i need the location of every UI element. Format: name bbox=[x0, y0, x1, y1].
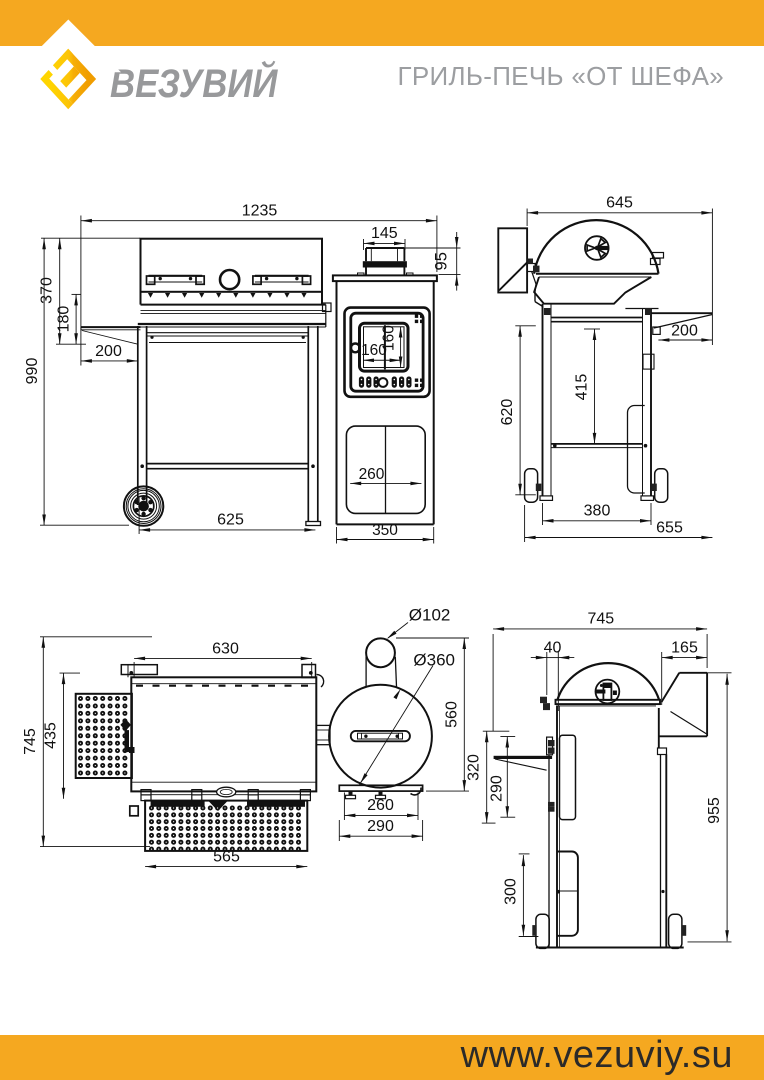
svg-text:645: 645 bbox=[606, 195, 633, 212]
svg-text:200: 200 bbox=[671, 322, 698, 339]
svg-text:625: 625 bbox=[217, 512, 244, 529]
svg-text:40: 40 bbox=[544, 639, 562, 656]
svg-text:990: 990 bbox=[24, 358, 41, 385]
svg-text:435: 435 bbox=[43, 722, 60, 749]
svg-text:180: 180 bbox=[55, 306, 72, 333]
svg-text:290: 290 bbox=[489, 775, 506, 802]
svg-text:290: 290 bbox=[367, 818, 394, 835]
svg-text:145: 145 bbox=[371, 225, 398, 242]
svg-text:955: 955 bbox=[706, 797, 723, 824]
svg-text:655: 655 bbox=[656, 520, 683, 537]
svg-text:Ø360: Ø360 bbox=[413, 650, 455, 669]
svg-text:260: 260 bbox=[359, 466, 385, 483]
svg-text:620: 620 bbox=[499, 399, 516, 426]
svg-text:565: 565 bbox=[213, 848, 240, 865]
svg-text:95: 95 bbox=[433, 252, 451, 270]
svg-text:300: 300 bbox=[503, 878, 520, 905]
svg-text:1235: 1235 bbox=[242, 203, 278, 220]
svg-text:320: 320 bbox=[465, 754, 482, 781]
svg-text:Ø102: Ø102 bbox=[409, 605, 451, 624]
svg-text:165: 165 bbox=[671, 639, 698, 656]
svg-text:260: 260 bbox=[367, 797, 394, 814]
svg-text:415: 415 bbox=[574, 374, 591, 401]
svg-text:560: 560 bbox=[443, 701, 460, 728]
svg-text:745: 745 bbox=[22, 728, 39, 755]
svg-text:350: 350 bbox=[372, 522, 398, 539]
svg-text:630: 630 bbox=[212, 640, 239, 657]
svg-text:745: 745 bbox=[587, 611, 614, 628]
svg-text:160: 160 bbox=[380, 325, 397, 351]
svg-text:200: 200 bbox=[95, 343, 122, 360]
svg-text:370: 370 bbox=[39, 277, 56, 304]
svg-text:380: 380 bbox=[584, 503, 611, 520]
